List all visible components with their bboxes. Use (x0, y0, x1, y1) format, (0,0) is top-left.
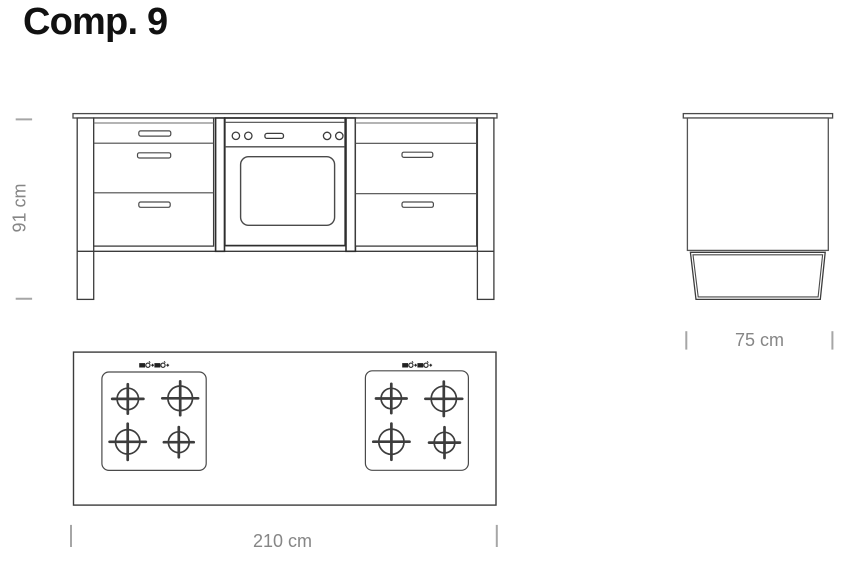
svg-text:75 cm: 75 cm (735, 330, 784, 350)
svg-text:Comp. 9: Comp. 9 (23, 1, 167, 43)
svg-text:210 cm: 210 cm (253, 531, 312, 551)
svg-text:91 cm: 91 cm (10, 183, 30, 232)
